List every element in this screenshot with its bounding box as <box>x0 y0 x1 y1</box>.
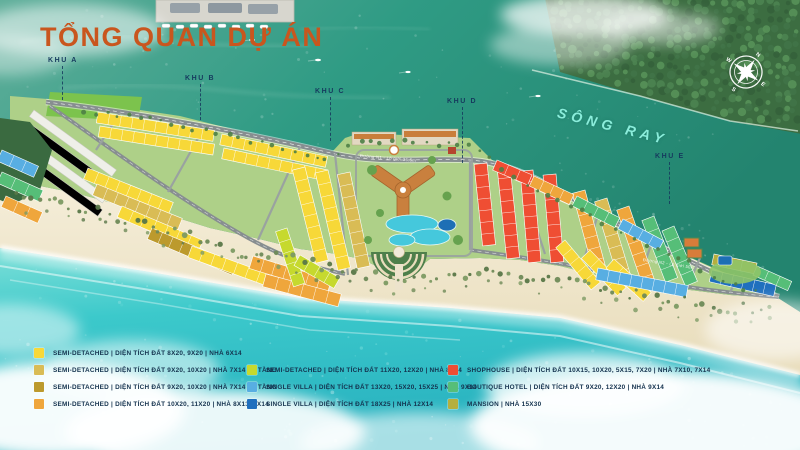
lagoon-pool <box>386 215 456 246</box>
masterplan-page: NESW TỔNG QUAN DỰ ÁN SÔNG RAY KHU AKHU B… <box>0 0 800 450</box>
masterplan-map: NESW <box>0 0 800 450</box>
